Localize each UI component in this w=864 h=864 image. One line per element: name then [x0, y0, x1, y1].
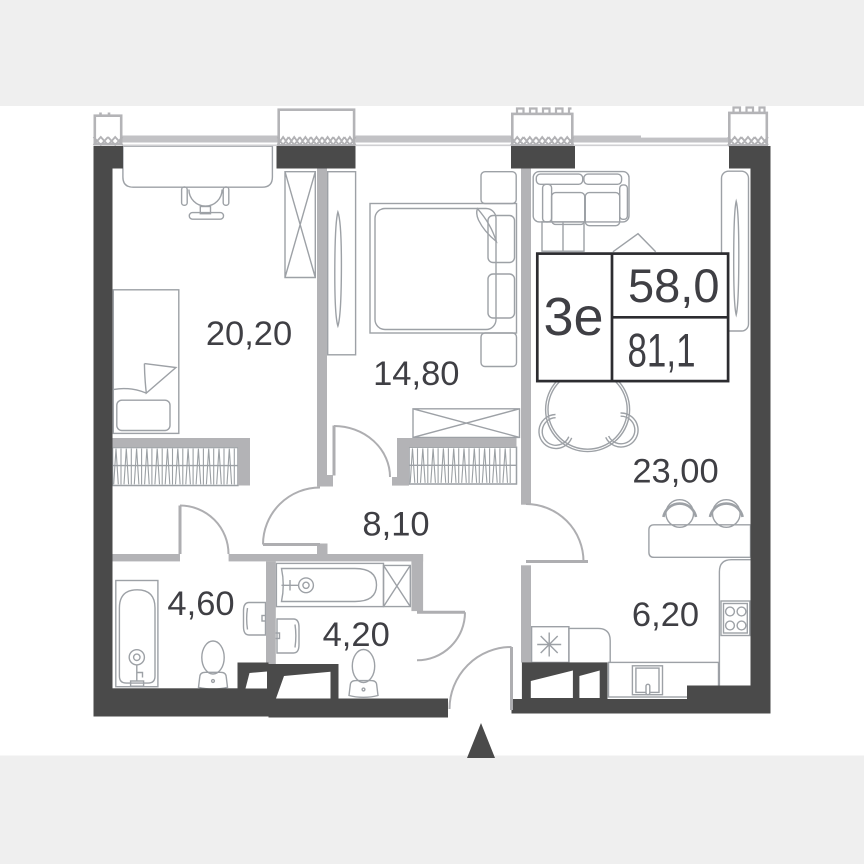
- svg-text:3е: 3е: [543, 287, 603, 347]
- svg-text:20,20: 20,20: [206, 315, 292, 353]
- svg-text:14,80: 14,80: [373, 355, 459, 393]
- svg-text:23,00: 23,00: [632, 453, 718, 491]
- svg-text:8,10: 8,10: [362, 506, 429, 544]
- svg-text:58,0: 58,0: [628, 259, 719, 312]
- svg-text:4,20: 4,20: [323, 616, 390, 654]
- svg-text:4,60: 4,60: [167, 585, 234, 623]
- svg-text:6,20: 6,20: [632, 596, 699, 634]
- svg-text:81,1: 81,1: [628, 324, 696, 377]
